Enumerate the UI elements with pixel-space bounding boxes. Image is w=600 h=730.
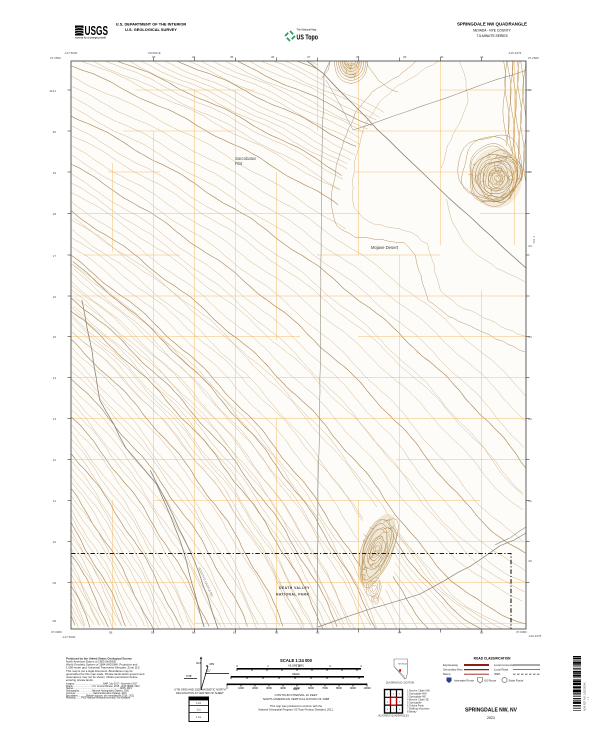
svg-text:4121: 4121 bbox=[49, 89, 56, 93]
svg-text:NGA REF NO. USGSX24K: NGA REF NO. USGSX24K bbox=[584, 682, 587, 711]
svg-text:62: 62 bbox=[275, 631, 279, 635]
svg-text:1 cm: 1 cm bbox=[196, 716, 201, 719]
svg-text:33: 33 bbox=[152, 55, 156, 59]
svg-text:MILES: MILES bbox=[292, 673, 300, 676]
svg-text:64: 64 bbox=[398, 631, 402, 635]
svg-text:12: 12 bbox=[53, 458, 57, 462]
svg-text:SPRINGDALE NW QUADRANGLE: SPRINGDALE NW QUADRANGLE bbox=[457, 22, 527, 27]
svg-text:37.0000: 37.0000 bbox=[51, 630, 62, 634]
svg-text:NEVADA: NEVADA bbox=[398, 663, 407, 666]
svg-text:37: 37 bbox=[307, 55, 311, 59]
svg-text:41: 41 bbox=[480, 55, 484, 59]
svg-text:08: 08 bbox=[53, 619, 57, 623]
svg-text:The National Map: The National Map bbox=[297, 29, 317, 32]
svg-text:SPRINGDALE NW, NV: SPRINGDALE NW, NV bbox=[465, 708, 518, 714]
svg-text:science for a changing world: science for a changing world bbox=[75, 36, 107, 40]
svg-text:11: 11 bbox=[53, 499, 56, 503]
svg-text:NEVADA - NYE COUNTY: NEVADA - NYE COUNTY bbox=[473, 29, 511, 33]
svg-text:QUADRANGLE LOCATION: QUADRANGLE LOCATION bbox=[386, 682, 415, 685]
svg-text:SCALE 1:24 000: SCALE 1:24 000 bbox=[280, 658, 313, 663]
svg-text:-117.5000: -117.5000 bbox=[62, 635, 76, 639]
svg-text:Mojave Desert: Mojave Desert bbox=[371, 245, 399, 250]
svg-text:Ramp: Ramp bbox=[443, 672, 451, 676]
svg-text:11°: 11° bbox=[207, 669, 211, 673]
svg-text:35: 35 bbox=[230, 55, 234, 59]
svg-text:NATIONAL PARK: NATIONAL PARK bbox=[276, 593, 309, 597]
svg-text:Interstate Route: Interstate Route bbox=[454, 679, 474, 683]
svg-text:US Topo: US Topo bbox=[297, 33, 319, 42]
svg-text:U.S. DEPARTMENT OF THE INTERIO: U.S. DEPARTMENT OF THE INTERIOR bbox=[116, 22, 187, 27]
svg-text:09: 09 bbox=[53, 581, 57, 585]
svg-text:DEATH VALLEY: DEATH VALLEY bbox=[279, 586, 310, 590]
svg-text:This map was produced to confo: This map was produced to conform with th… bbox=[270, 704, 322, 708]
svg-text:14: 14 bbox=[53, 376, 57, 380]
svg-text:KILOMETERS: KILOMETERS bbox=[288, 665, 304, 668]
svg-text:Expressway: Expressway bbox=[443, 663, 459, 667]
svg-text:37.0000: 37.0000 bbox=[516, 630, 527, 634]
svg-text:59: 59 bbox=[151, 631, 155, 635]
svg-text:05: 05 bbox=[529, 170, 533, 174]
svg-text:NORTH AMERICAN VERTICAL DATUM: NORTH AMERICAN VERTICAL DATUM OF 1988 bbox=[263, 697, 330, 701]
svg-text:T. 8 S.: T. 8 S. bbox=[532, 236, 536, 244]
svg-text:State Route: State Route bbox=[509, 679, 524, 683]
svg-text:National Geospatial Program US: National Geospatial Program US Topo Prod… bbox=[258, 708, 333, 712]
svg-text:DECLINATION AT CENTER OF SHEET: DECLINATION AT CENTER OF SHEET bbox=[176, 691, 224, 695]
svg-text:337000mE: 337000mE bbox=[148, 51, 161, 55]
svg-text:Wetlands.........FWS National: Wetlands.........FWS National Wetlands I… bbox=[66, 697, 131, 700]
svg-text:entering private lands.: entering private lands. bbox=[66, 678, 94, 682]
svg-text:ROAD CLASSIFICATION: ROAD CLASSIFICATION bbox=[474, 657, 511, 661]
svg-text:40: 40 bbox=[440, 55, 444, 59]
svg-text:01: 01 bbox=[529, 499, 533, 503]
svg-text:-117.5000: -117.5000 bbox=[64, 51, 78, 55]
svg-text:15: 15 bbox=[53, 335, 57, 339]
svg-text:61: 61 bbox=[233, 631, 237, 635]
svg-text:65: 65 bbox=[480, 631, 484, 635]
svg-text:4WD: 4WD bbox=[494, 672, 500, 676]
svg-text:8 Beatty: 8 Beatty bbox=[407, 710, 417, 714]
svg-text:58: 58 bbox=[109, 631, 113, 635]
svg-text:1:24: 1:24 bbox=[196, 702, 201, 705]
svg-text:03: 03 bbox=[529, 335, 533, 339]
svg-text:38: 38 bbox=[356, 55, 360, 59]
svg-text:U.S. GEOLOGICAL SURVEY: U.S. GEOLOGICAL SURVEY bbox=[125, 27, 177, 32]
svg-text:GN: GN bbox=[196, 661, 201, 665]
svg-text:34: 34 bbox=[192, 55, 196, 59]
svg-text:18: 18 bbox=[53, 212, 57, 216]
svg-text:13: 13 bbox=[53, 417, 57, 421]
svg-text:US Route: US Route bbox=[484, 679, 497, 683]
svg-text:16: 16 bbox=[53, 295, 57, 299]
svg-text:2021: 2021 bbox=[487, 716, 495, 720]
svg-text:37.2500: 37.2500 bbox=[528, 56, 539, 60]
svg-text:37.2500: 37.2500 bbox=[50, 56, 61, 60]
svg-text:1 in: 1 in bbox=[197, 709, 202, 712]
svg-text:60: 60 bbox=[192, 631, 196, 635]
svg-text:-116.4375: -116.4375 bbox=[508, 51, 522, 55]
svg-text:ADJOINING QUADRANGLES: ADJOINING QUADRANGLES bbox=[378, 715, 409, 718]
svg-text:63: 63 bbox=[316, 631, 320, 635]
svg-text:20: 20 bbox=[53, 130, 57, 134]
svg-text:0°28´: 0°28´ bbox=[186, 674, 192, 678]
svg-text:19: 19 bbox=[53, 171, 57, 175]
svg-text:-116.4375: -116.4375 bbox=[528, 634, 542, 638]
svg-text:02: 02 bbox=[529, 417, 533, 421]
svg-text:7.5-MINUTE SERIES: 7.5-MINUTE SERIES bbox=[476, 34, 508, 38]
svg-text:39: 39 bbox=[403, 55, 407, 59]
svg-text:00: 00 bbox=[529, 559, 533, 563]
svg-text:17: 17 bbox=[53, 254, 57, 258]
svg-text:06: 06 bbox=[529, 88, 533, 92]
svg-text:10: 10 bbox=[53, 540, 57, 544]
svg-text:36: 36 bbox=[271, 55, 275, 59]
svg-text:Local Connector: Local Connector bbox=[494, 663, 514, 667]
svg-text:04: 04 bbox=[529, 244, 533, 248]
svg-text:Flat: Flat bbox=[235, 161, 243, 166]
svg-text:Secondary Hwy: Secondary Hwy bbox=[443, 668, 463, 672]
svg-text:MN: MN bbox=[210, 662, 215, 666]
svg-text:Local Road: Local Road bbox=[494, 668, 509, 672]
